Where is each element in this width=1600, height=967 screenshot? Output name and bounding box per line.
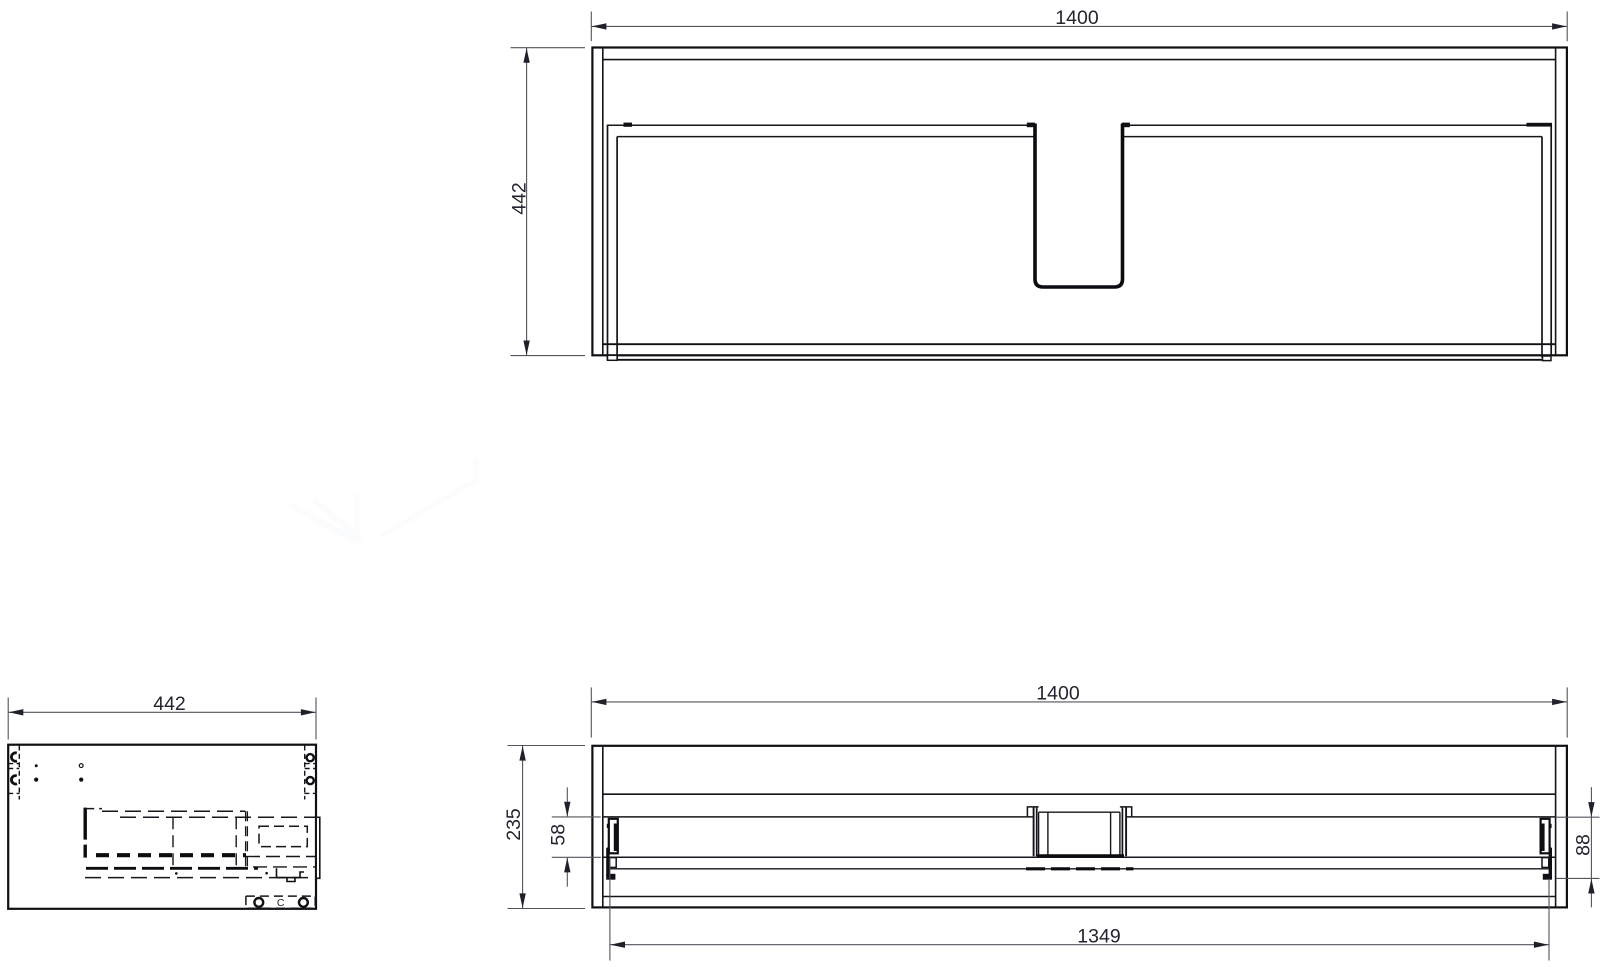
svg-text:58: 58 — [548, 824, 570, 846]
svg-text:C: C — [277, 897, 285, 909]
svg-text:1349: 1349 — [1077, 925, 1120, 947]
svg-text:1400: 1400 — [1036, 683, 1080, 705]
svg-text:1400: 1400 — [1055, 7, 1099, 29]
svg-text:88: 88 — [1573, 834, 1595, 856]
svg-text:442: 442 — [508, 182, 530, 215]
svg-text:235: 235 — [503, 808, 525, 841]
svg-text:442: 442 — [153, 693, 186, 715]
